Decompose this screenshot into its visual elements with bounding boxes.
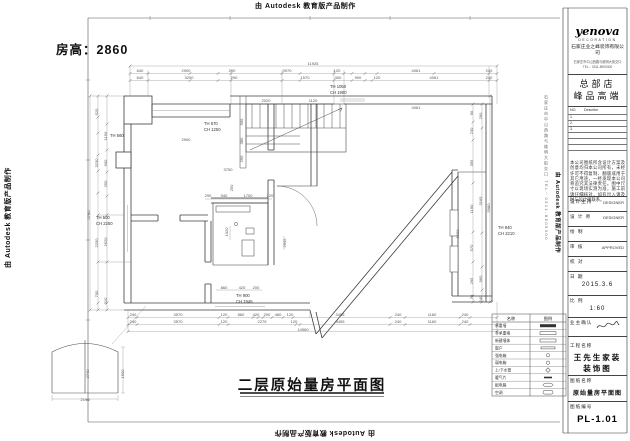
dimension-text: 11925	[308, 61, 320, 66]
field-label: 审 核	[570, 244, 583, 250]
dimension-text: 95	[469, 110, 474, 115]
revision-table-line	[568, 144, 627, 145]
legend-header-symbol: 图例	[544, 315, 552, 322]
dimension-text: 420	[239, 285, 246, 290]
dimension-text: 3455	[336, 319, 346, 324]
revision-row: 1.	[570, 115, 573, 119]
project-name-line1: 王先生家装	[568, 352, 627, 363]
dimension-text: 2275	[258, 319, 268, 324]
room-height-label: 房高：2860	[56, 39, 128, 58]
dimension-text: 290	[231, 75, 238, 80]
dimension-text: 5780	[86, 210, 91, 220]
annotation-text: TH 560	[110, 133, 124, 138]
bathroom	[211, 198, 268, 265]
annotation-text: TH 500	[96, 215, 110, 220]
dimension-text: 200	[253, 285, 260, 290]
dimension-text: 5980	[486, 203, 491, 213]
legend-row-label: 强电箱	[495, 353, 507, 358]
dimension-text: 4061	[412, 68, 422, 73]
legend-symbol-solid-wall	[540, 324, 556, 327]
title-block-field: 日 期2015.3.6	[568, 272, 627, 296]
dimension-text: 4061	[412, 105, 422, 110]
revision-table-line	[568, 132, 627, 133]
field-label: 校 对	[570, 259, 583, 265]
company-phone: TEL：0311-8905300	[569, 65, 626, 69]
title-block-field: 绘 制	[568, 227, 627, 242]
plan-title: 二层原始量房平面图	[228, 374, 396, 395]
dimension-text: 4061	[430, 75, 440, 80]
company-logo-subtitle: DECORATION	[568, 38, 627, 42]
annotation-text: TH 670	[204, 121, 218, 126]
annotation-text: CH 2210	[498, 231, 515, 236]
dimension-text: 2620	[103, 237, 108, 247]
watermark-top: 由 Autodesk 教育版产品制作	[255, 1, 356, 11]
revision-table-line	[568, 150, 627, 151]
drawing-number-label: 图纸编号	[568, 402, 627, 410]
dimension-text: 240	[486, 68, 493, 73]
dimension-text: 295	[469, 277, 474, 284]
watermark-bottom: 由 Autodesk 教育版产品制作	[245, 428, 375, 438]
dimension-text: 240	[130, 319, 137, 324]
dimension-text: 3230	[94, 158, 99, 168]
dimension-text: 640	[137, 75, 144, 80]
annotation-text: CH 2250	[96, 221, 113, 226]
dimension-text: 240	[462, 319, 469, 324]
legend-symbol-window	[541, 347, 555, 349]
dimension-text: 200	[264, 312, 271, 317]
dimension-text: 700	[94, 290, 99, 297]
dimension-text: 1500	[120, 369, 125, 379]
dimension-text: 120	[221, 319, 228, 324]
dimension-text: 380	[239, 137, 244, 144]
drawing-sheet: 1192564029002903970120406124064032002901…	[0, 0, 630, 441]
drawing-number: PL-1.01	[568, 414, 627, 425]
dimension-text: 290	[239, 155, 244, 162]
field-value: 2015.3.6	[568, 282, 627, 288]
field-value: DESIGNER	[603, 200, 624, 205]
legend-symbol-panel	[543, 383, 553, 387]
dimension-text: 120	[221, 312, 228, 317]
pillar	[124, 96, 152, 124]
annotation-text: CH 1900	[330, 90, 347, 95]
store-grade: 峰品高端	[568, 90, 627, 102]
dimension-text: 240	[462, 312, 469, 317]
dimension-text: 3165	[478, 196, 483, 206]
annotation-text: TH 1050	[330, 84, 347, 89]
field-label: 绘 制	[570, 229, 583, 235]
dimension-text: 240	[478, 295, 483, 302]
revision-desc-header: Describe	[584, 108, 598, 112]
dimension-text: 3970	[283, 68, 293, 73]
legend-row-label: 暖气片	[495, 375, 507, 380]
revision-row: 2.	[570, 121, 573, 125]
revision-no-header: NO.	[570, 108, 576, 112]
dimension-text: 120	[374, 75, 381, 80]
tick-marks	[89, 65, 499, 333]
revision-table-line	[568, 138, 627, 139]
dimension-text: 120	[334, 68, 341, 73]
dimension-text: 2905	[282, 238, 287, 248]
title-block-field: 审 核APPROVED	[568, 242, 627, 257]
drawing-name-section: 图纸名称 原始量房平面图	[568, 376, 627, 402]
dimension-text: 1160	[428, 319, 437, 324]
dimension-text: 395	[469, 159, 474, 166]
title-block-field: 设计主持DESIGNER	[568, 197, 627, 212]
field-label: 比 例	[570, 298, 583, 304]
watermark-left: 由 Autodesk 教育版产品制作	[3, 138, 13, 268]
field-label: 日 期	[570, 274, 583, 280]
legend-row-label: 非承重墙	[495, 331, 510, 336]
dimension-text: 640	[137, 68, 144, 73]
title-block-field: 校 对	[568, 257, 627, 272]
frame-side-text: 石家庄市中山西路与维明大街交口 TEL：0311-8905300	[543, 95, 549, 310]
dimension-text: 3570	[174, 319, 184, 324]
dimension-text: 230	[469, 127, 474, 134]
dimension-text: 420	[253, 312, 260, 317]
drawing-name-label: 图纸名称	[568, 376, 627, 384]
dimension-text: 1160	[428, 312, 437, 317]
legend-row-label: 新建墙体	[495, 338, 510, 343]
dimension-text: 120	[287, 312, 294, 317]
annotation-text: TH 940	[498, 225, 512, 230]
legend-symbol-pipe	[546, 368, 551, 373]
annotation-text: CH 1945	[236, 299, 253, 304]
project-name-section: 工程名称 王先生家装 装饰图	[568, 341, 627, 376]
dimension-text: 3570	[174, 312, 184, 317]
legend-symbol-box	[546, 354, 549, 357]
dimension-text: 14960	[297, 327, 309, 332]
title-block: yenova DECORATION 石家庄业之峰装饰有限公司 石家庄市中山西路与…	[568, 8, 627, 433]
dimension-text: 460	[275, 312, 282, 317]
drawing-number-section: 图纸编号 PL-1.01	[568, 402, 627, 433]
watermark-right: 由 Autodesk 教育版产品制作	[554, 172, 562, 302]
wall-linework	[116, 96, 492, 338]
dimension-text: 1020	[224, 227, 229, 237]
dimension-text: 900	[239, 118, 244, 125]
legend-row-label: 窗户	[495, 345, 503, 350]
dimension-text: 1120	[309, 98, 318, 103]
dimension-text: 900	[103, 159, 108, 166]
dimension-text: 2740	[85, 369, 90, 379]
drawing-name: 原始量房平面图	[568, 388, 627, 397]
revision-table-line	[568, 126, 627, 127]
legend-symbol-wall	[540, 332, 556, 335]
legend-content: 名称图例承重墙非承重墙新建墙体窗户强电箱弱电箱上/下水管暖气片配电箱空调	[492, 315, 566, 395]
dimension-text: 3200	[185, 75, 195, 80]
door-swing-arc	[277, 186, 317, 226]
legend-symbol-ac	[543, 391, 553, 395]
divider	[568, 74, 627, 75]
staircase	[240, 96, 346, 168]
dimension-text: 400	[335, 75, 342, 80]
field-value: 1:60	[568, 306, 627, 312]
project-name-label: 工程名称	[568, 341, 627, 349]
company-address: 石家庄市中山西路与维明大街交口	[569, 60, 626, 64]
revision-row: 3.	[570, 127, 573, 131]
field-label: 业主确认	[570, 320, 592, 326]
dimension-text: 240	[395, 312, 402, 317]
dimension-ticks	[89, 65, 499, 333]
owner-signature	[596, 321, 620, 331]
project-name-line2: 装饰图	[568, 363, 627, 374]
dimension-text: 290	[478, 112, 483, 119]
dimension-text: 1190	[469, 204, 474, 213]
dimension-text: 290	[205, 193, 212, 198]
dimension-text: 860	[238, 312, 245, 317]
dimension-text: 570	[469, 244, 474, 251]
title-block-field: 业主确认	[568, 318, 627, 337]
dimension-text: 120	[267, 193, 274, 198]
dimension-text: 3750	[224, 167, 234, 172]
dimension-text: 120	[291, 319, 298, 324]
dimension-text: 2020	[262, 98, 272, 103]
legend-row-label: 配电箱	[495, 382, 507, 387]
dimension-text: 2250	[94, 238, 99, 248]
dimension-text: 290	[229, 68, 236, 73]
company-logo: yenova	[568, 24, 627, 38]
legend-header-name: 名称	[507, 315, 515, 322]
legend-row-label: 上/下水管	[495, 368, 511, 373]
dimension-text: 2900	[182, 68, 192, 73]
annotation-text: CH 1250	[204, 127, 221, 132]
dimension-text: 70	[469, 294, 474, 299]
dimension-text: 250	[103, 180, 108, 187]
dimension-text: 240	[486, 75, 493, 80]
dimension-text: 3455	[336, 312, 346, 317]
dimension-text: 310	[103, 297, 108, 304]
revision-table: NO. Describe 1. 2. 3.	[568, 106, 627, 156]
dimension-text: 1570	[301, 75, 311, 80]
dimension-text: 960	[478, 275, 483, 282]
dimension-text: 2900	[182, 137, 192, 142]
revision-table-line	[568, 120, 627, 121]
dimension-text: 2190	[81, 397, 91, 402]
field-value: DESIGNER	[603, 215, 624, 220]
title-block-fields: 设计主持DESIGNER设 计 师DESIGNER绘 制审 核APPROVED校…	[568, 196, 627, 197]
field-value: APPROVED	[602, 245, 624, 250]
dimension-text: 240	[395, 319, 402, 324]
legend-symbol-wall	[540, 339, 556, 342]
dimension-text: 1900	[455, 229, 460, 239]
dimension-text: 900	[355, 75, 362, 80]
dimension-text: 240	[130, 312, 137, 317]
store-name: 总部店	[568, 78, 627, 90]
legend-row-label: 空调	[495, 390, 503, 395]
field-label: 设计主持	[570, 199, 592, 205]
stair-direction-line	[250, 108, 342, 150]
dimension-text: 250	[229, 184, 234, 191]
dimension-text: 860	[221, 285, 228, 290]
field-label: 设 计 师	[570, 214, 591, 220]
dimension-text: 1150	[103, 131, 108, 140]
dimension-lines	[90, 66, 497, 332]
annotation-text: TH 900	[236, 293, 250, 298]
legend-symbol-box	[546, 361, 549, 364]
legend-row-label: 承重墙	[495, 323, 507, 328]
dimension-text: 1700	[244, 193, 254, 198]
company-name: 石家庄业之峰装饰有限公司	[570, 45, 625, 57]
revision-table-line	[568, 114, 627, 115]
legend-row-label: 弱电箱	[495, 360, 507, 365]
title-block-field: 比 例1:60	[568, 296, 627, 318]
title-block-field: 设 计 师DESIGNER	[568, 212, 627, 227]
dimension-text: 940	[221, 193, 228, 198]
dimension-text: 520	[94, 108, 99, 115]
